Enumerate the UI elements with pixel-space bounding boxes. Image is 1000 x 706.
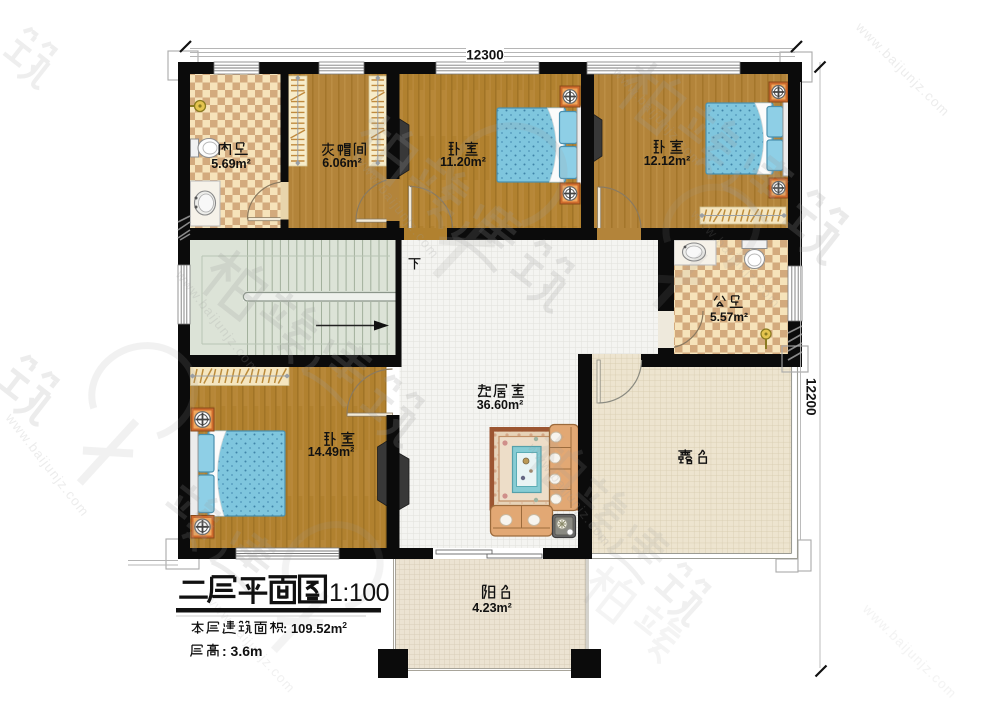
svg-text:11.20m²: 11.20m² bbox=[440, 155, 486, 169]
svg-text:36.60m²: 36.60m² bbox=[477, 398, 524, 412]
svg-text:6.06m²: 6.06m² bbox=[322, 156, 362, 170]
svg-text:: 3.6m: : 3.6m bbox=[222, 643, 262, 659]
svg-text:1:100: 1:100 bbox=[329, 579, 389, 607]
svg-text:14.49m²: 14.49m² bbox=[308, 445, 355, 459]
svg-text:: 109.52m2: : 109.52m2 bbox=[283, 620, 347, 636]
svg-text:5.57m²: 5.57m² bbox=[710, 310, 748, 324]
svg-text:4.23m²: 4.23m² bbox=[472, 601, 512, 615]
svg-text:5.69m²: 5.69m² bbox=[211, 157, 251, 171]
svg-text:12300: 12300 bbox=[466, 48, 504, 63]
svg-text:12.12m²: 12.12m² bbox=[644, 154, 691, 168]
svg-text:12200: 12200 bbox=[804, 378, 819, 416]
